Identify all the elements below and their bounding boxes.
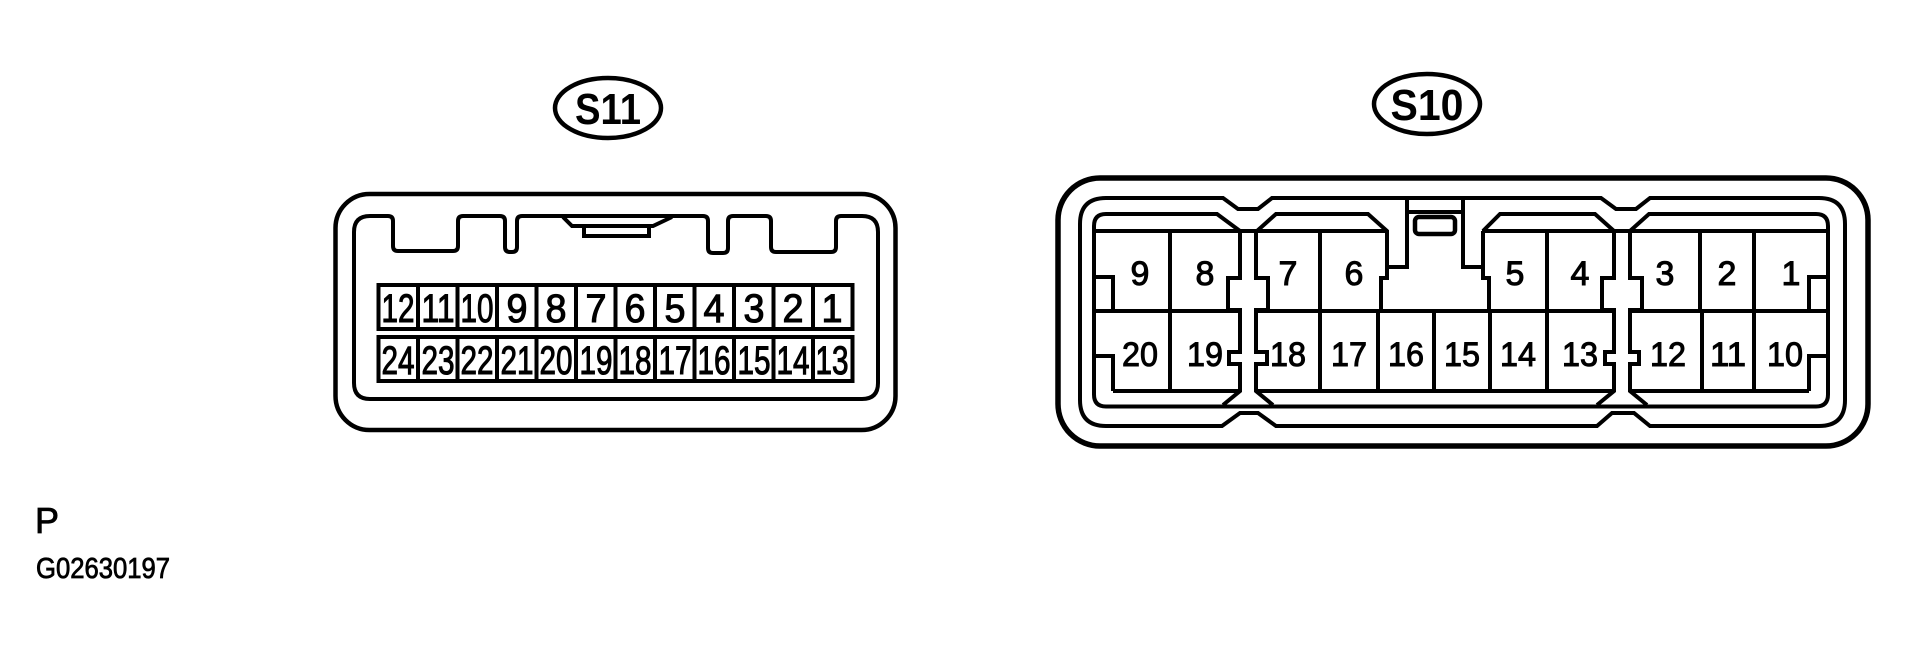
svg-text:7: 7 — [1279, 255, 1298, 293]
svg-text:4: 4 — [704, 287, 725, 331]
svg-text:19: 19 — [580, 339, 613, 383]
svg-text:12: 12 — [382, 287, 415, 331]
svg-text:10: 10 — [1767, 336, 1803, 374]
svg-text:23: 23 — [422, 339, 455, 383]
svg-text:17: 17 — [659, 339, 692, 383]
svg-text:11: 11 — [1710, 336, 1746, 374]
svg-text:12: 12 — [1650, 336, 1686, 374]
svg-text:20: 20 — [540, 339, 573, 383]
svg-text:5: 5 — [665, 287, 686, 331]
svg-text:16: 16 — [1388, 336, 1424, 374]
svg-text:P: P — [35, 500, 59, 541]
svg-text:16: 16 — [698, 339, 731, 383]
svg-text:13: 13 — [1562, 336, 1598, 374]
svg-text:15: 15 — [1444, 336, 1480, 374]
svg-text:19: 19 — [1187, 336, 1223, 374]
svg-text:6: 6 — [1345, 255, 1364, 293]
svg-text:9: 9 — [1131, 255, 1150, 293]
svg-text:8: 8 — [1196, 255, 1215, 293]
svg-text:1: 1 — [822, 287, 843, 331]
svg-text:20: 20 — [1122, 336, 1158, 374]
svg-text:3: 3 — [744, 287, 765, 331]
svg-text:8: 8 — [546, 287, 567, 331]
svg-text:4: 4 — [1571, 255, 1590, 293]
svg-text:22: 22 — [461, 339, 494, 383]
svg-text:14: 14 — [1500, 336, 1536, 374]
svg-text:7: 7 — [586, 287, 607, 331]
svg-text:14: 14 — [777, 339, 810, 383]
svg-text:10: 10 — [461, 287, 494, 331]
svg-text:18: 18 — [619, 339, 652, 383]
svg-text:24: 24 — [382, 339, 415, 383]
svg-text:17: 17 — [1331, 336, 1367, 374]
svg-text:3: 3 — [1656, 255, 1675, 293]
svg-text:S10: S10 — [1391, 81, 1464, 130]
svg-text:13: 13 — [816, 339, 849, 383]
svg-text:18: 18 — [1270, 336, 1306, 374]
svg-text:21: 21 — [501, 339, 534, 383]
svg-text:1: 1 — [1782, 255, 1801, 293]
svg-text:2: 2 — [783, 287, 804, 331]
svg-text:S11: S11 — [575, 85, 641, 134]
svg-text:5: 5 — [1506, 255, 1525, 293]
svg-text:15: 15 — [738, 339, 771, 383]
svg-text:6: 6 — [625, 287, 646, 331]
svg-text:2: 2 — [1718, 255, 1737, 293]
svg-text:9: 9 — [507, 287, 528, 331]
svg-text:11: 11 — [422, 287, 455, 331]
svg-text:G02630197: G02630197 — [36, 553, 170, 585]
